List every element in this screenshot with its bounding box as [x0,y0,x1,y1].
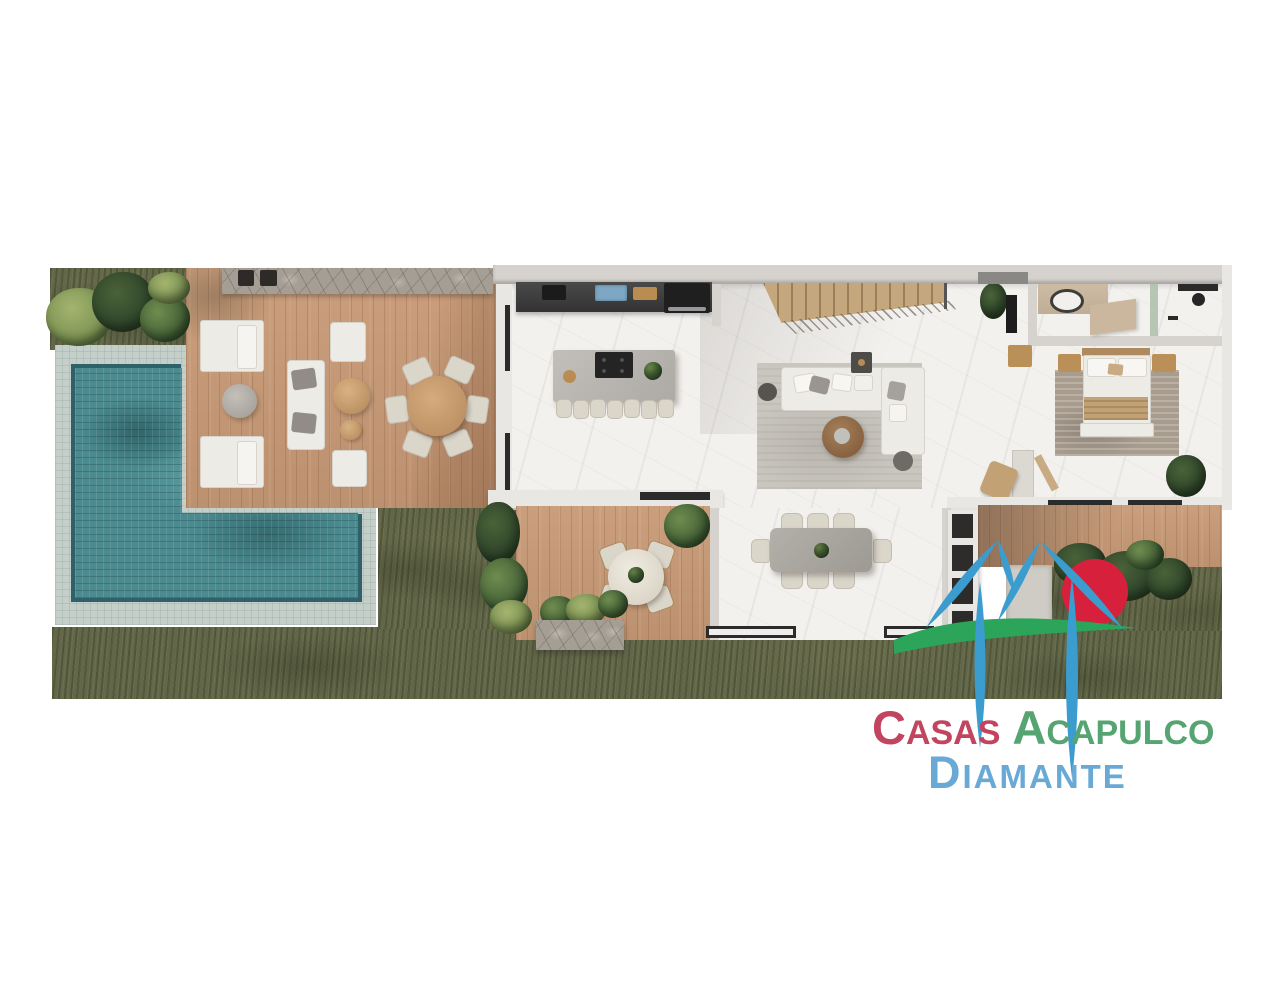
sink-basin [1050,289,1084,313]
bar-stool [658,399,674,418]
glass-slider-dining [706,626,796,638]
espresso-machine [542,285,566,300]
round-dining-table [407,376,467,436]
shower-head [1192,293,1205,306]
stair-rail [944,283,947,309]
cutting-board [633,287,657,300]
logo-word-diamante: Diamante [928,750,1127,795]
sectional-sofa-right [881,367,925,455]
bar-stool [607,400,623,419]
lounger-pillow [237,441,257,485]
fern [148,272,190,304]
bar-stool-cube [260,270,277,286]
dining-wall-west [710,508,719,640]
tropical-plant [476,502,520,564]
nightstand [1152,354,1176,372]
wood-coffee-table [333,378,370,414]
bar-stool [590,399,606,418]
bed-cushion [1107,363,1123,376]
decor-bottle [858,359,865,366]
table-plant [628,567,644,583]
bed-bench [1080,423,1154,437]
blue-glassware [595,285,627,301]
dining-chair [751,539,770,563]
cooktop [595,352,633,378]
bar-stool-cube [238,270,254,286]
bathroom-wall [1036,336,1222,346]
outdoor-armchair [330,322,366,362]
range-oven [664,283,710,313]
table-centerpiece [814,543,829,558]
sofa-cushion [291,412,317,434]
glass-slider-patio [640,492,710,500]
kitchen-stair-wall [712,284,721,326]
logo-word-acapulco: Acapulco [1012,704,1214,751]
small-side-table [758,383,777,401]
sofa-cushion [291,367,318,390]
right-exterior-wall [1222,265,1232,510]
bed-blanket [1084,397,1148,420]
bar-stool [556,399,572,418]
bedroom-plant [1166,455,1206,497]
deck-bush [664,504,710,548]
pouf [893,451,913,471]
floor-plan-render: CasasAcapulco Diamante [0,0,1280,989]
wood-bowl [563,370,576,383]
island-plant [644,362,662,380]
dining-chair [781,571,803,589]
logo-word-casas: Casas [872,704,1000,751]
dining-chair [833,571,855,589]
round-side-table [222,384,257,418]
shower-valve [1168,316,1178,320]
planter-plant [598,590,628,618]
tv-screen [1006,295,1017,333]
towel-bar [1178,284,1218,291]
dining-chair [807,571,829,589]
logo-text-line2: Diamante [928,750,1127,795]
oven-handle [668,307,706,311]
wood-coffee-table-small [340,420,361,440]
sofa-pillow [854,375,873,391]
bar-stool [624,399,640,418]
sun-lounger [200,320,264,372]
lounger-pillow [237,325,257,369]
dining-chair [464,395,490,425]
sofa-pillow [831,373,853,393]
logo-text-line1: CasasAcapulco [872,704,1214,751]
square-side-table [851,352,872,373]
round-coffee-table [822,416,864,458]
shower-glass [1150,284,1158,336]
sofa-pillow-gray [887,381,907,402]
sun-lounger [200,436,264,488]
sofa-pillow [889,404,907,422]
glass-slider-left [505,305,510,371]
nightstand [1058,354,1081,372]
outdoor-armchair [332,450,367,487]
entry-threshold [978,272,1028,284]
dining-table [770,528,872,572]
hall-plant [980,283,1007,319]
glass-slider-left [505,433,510,497]
sofa-pillow-gray [808,375,830,395]
bar-stool [573,400,589,419]
outdoor-sofa [287,360,325,450]
dining-chair [384,395,410,425]
hall-console [1008,345,1032,367]
palm-plant [490,600,532,634]
bar-stool [641,400,657,419]
tray [834,428,850,444]
stone-planter [536,620,624,650]
